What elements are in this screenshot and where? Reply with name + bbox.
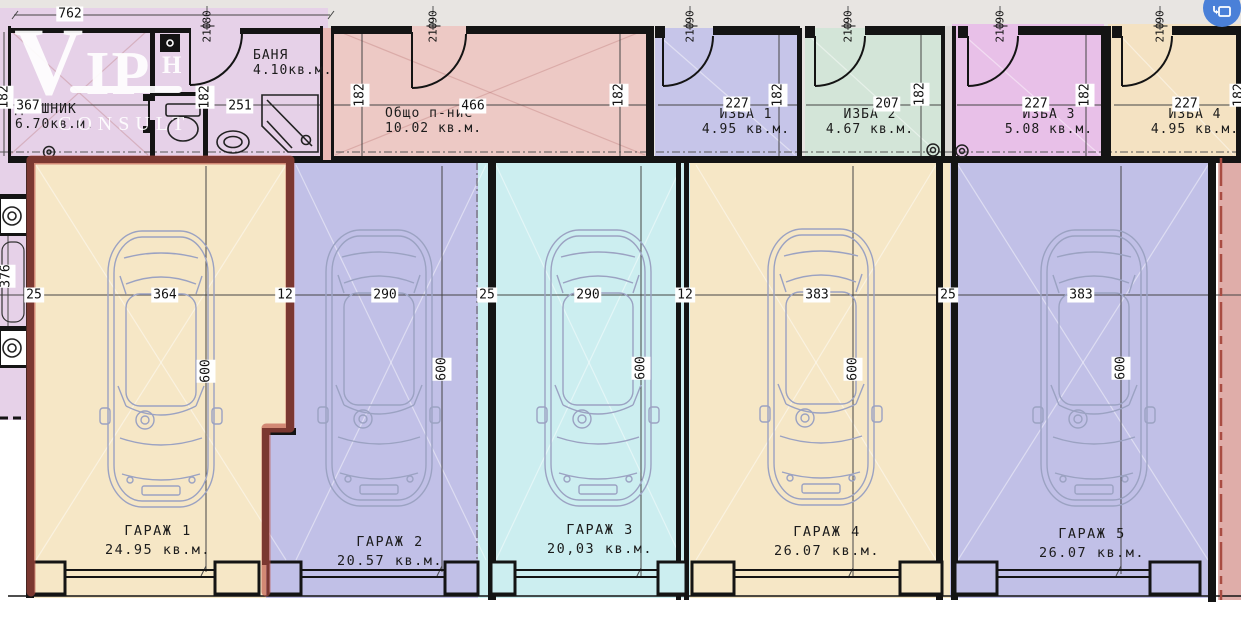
room-garage-4[interactable] — [690, 158, 950, 598]
room-garage-3[interactable] — [478, 158, 690, 598]
room-izba-4[interactable] — [1108, 24, 1241, 162]
right-neighbour-strip — [1218, 158, 1241, 600]
room-izba-1[interactable] — [655, 28, 798, 162]
room-izba-3[interactable] — [952, 24, 1104, 162]
left-service-strip — [0, 158, 28, 420]
room-garage-2[interactable] — [292, 158, 478, 598]
room-garage-5[interactable] — [950, 158, 1212, 598]
floor-plan-canvas: ДРЕШНИК 6.70кв.м. БАНЯ 4.10кв.м. Общо п-… — [0, 0, 1241, 643]
room-garage-2-notch[interactable] — [266, 432, 292, 598]
room-common[interactable] — [332, 26, 648, 162]
room-dressing-bath-block[interactable] — [0, 8, 328, 162]
room-izba-2[interactable] — [805, 28, 943, 162]
room-garage-1[interactable] — [28, 158, 292, 598]
